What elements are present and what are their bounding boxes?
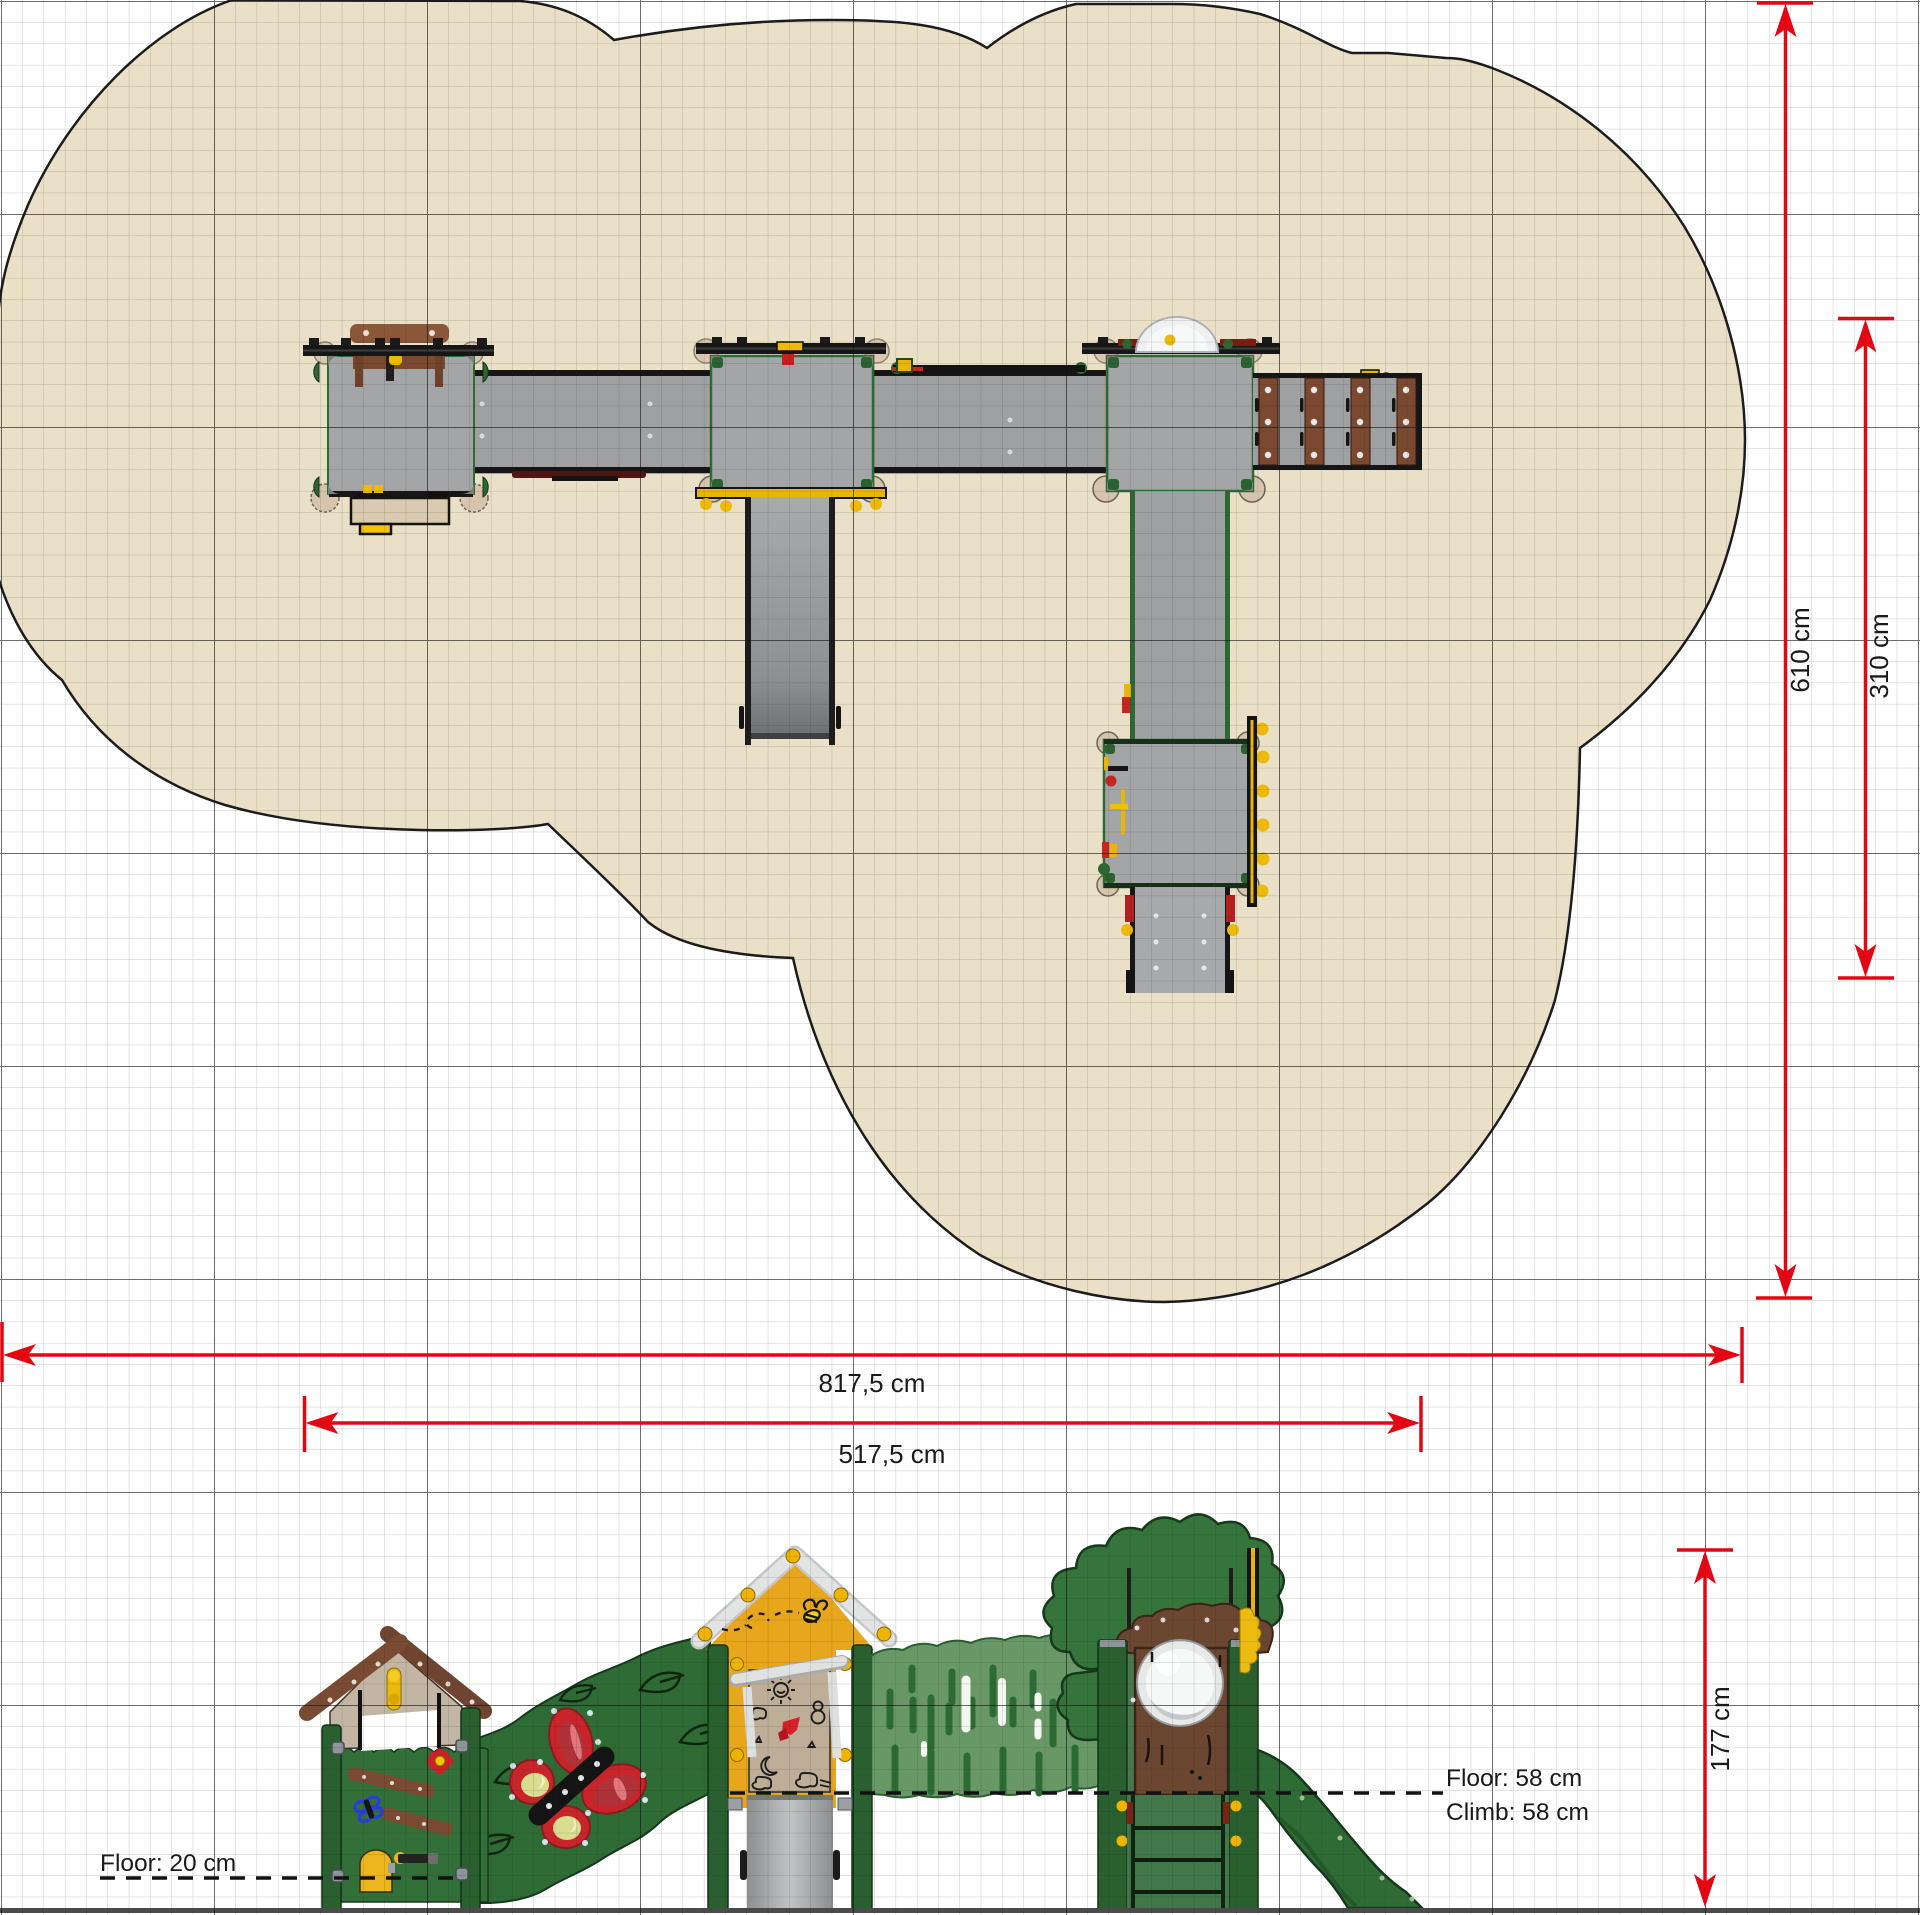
svg-text:Floor: 58 cm: Floor: 58 cm <box>1446 1765 1582 1792</box>
svg-text:177 cm: 177 cm <box>1705 1686 1735 1771</box>
svg-text:310 cm: 310 cm <box>1864 613 1894 698</box>
svg-text:817,5 cm: 817,5 cm <box>819 1368 926 1398</box>
svg-text:610 cm: 610 cm <box>1785 607 1815 692</box>
svg-text:Floor: 20 cm: Floor: 20 cm <box>100 1850 236 1877</box>
svg-text:517,5 cm: 517,5 cm <box>839 1439 946 1469</box>
svg-text:Climb: 58 cm: Climb: 58 cm <box>1446 1799 1589 1826</box>
